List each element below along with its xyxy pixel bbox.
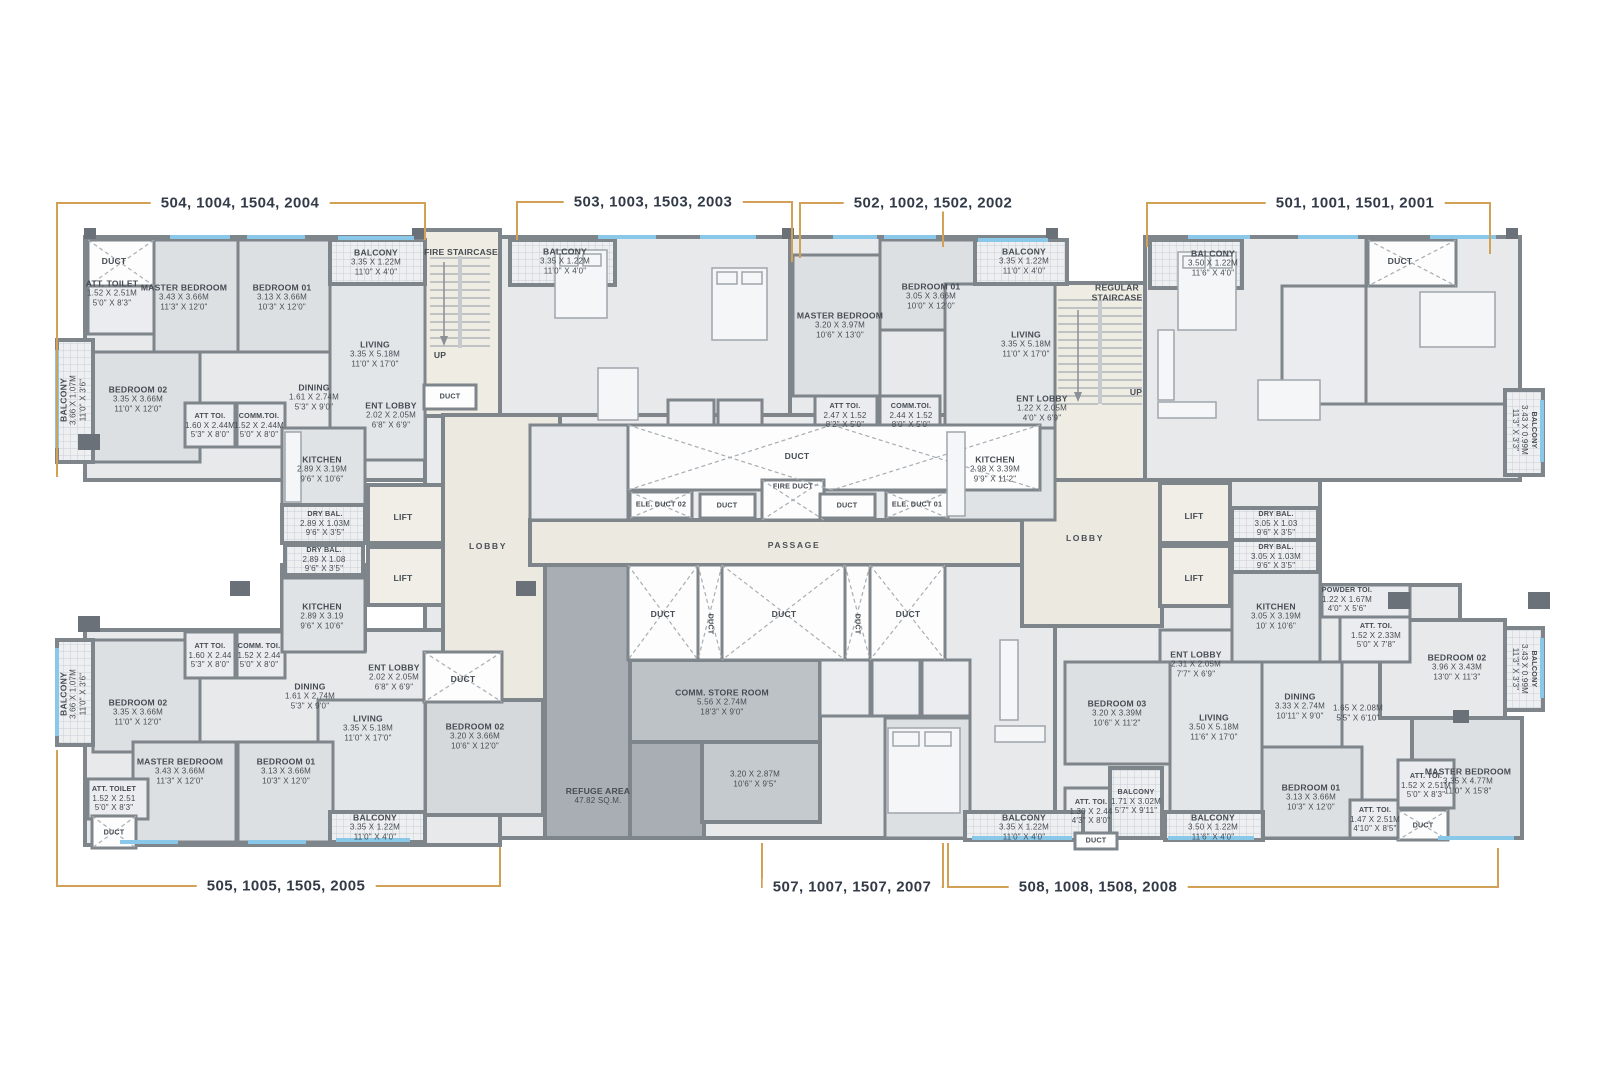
- unit-label-505: 505, 1005, 1505, 2005: [197, 878, 376, 895]
- room-label-508-balcony-bottom: BALCONY3.50 X 1.22M11'6" X 4'0": [1188, 812, 1238, 842]
- room-label-507-balcony-bottom: BALCONY3.35 X 1.22M11'0" X 4'0": [999, 812, 1049, 842]
- room-label-508-att-toi2: ATT. TOI.1.52 X 2.51M5'0" X 8'3": [1401, 772, 1451, 800]
- room-label-504-dining: DINING1.61 X 2.74M5'3" X 9'0": [289, 382, 339, 412]
- floor-plan: 504, 1004, 1504, 2004 503, 1003, 1503, 2…: [0, 0, 1600, 1067]
- room-label-508-living: LIVING3.50 X 5.18M11'6" X 17'0": [1189, 712, 1239, 742]
- room-label-505-balcony-bottom: BALCONY3.35 X 1.22M11'0" X 4'0": [350, 812, 400, 842]
- duct-label: DUCT: [451, 674, 476, 684]
- room-label-505-dining: DINING1.61 X 2.74M5'3" X 9'0": [285, 681, 335, 711]
- duct-label: DUCT: [706, 614, 715, 635]
- room-label-508-bed02: BEDROOM 023.96 X 3.43M13'0" X 11'3": [1428, 652, 1487, 682]
- duct-label: DUCT: [785, 451, 810, 461]
- room-label-508-hall-dim: 1.65 X 2.08M5'5" X 6'10": [1333, 703, 1383, 722]
- room-label-502-balcony: BALCONY3.35 X 1.22M11'0" X 4'0": [999, 246, 1049, 276]
- room-label-507-comm-store: COMM. STORE ROOM5.56 X 2.74M18'3" X 9'0": [675, 687, 769, 717]
- room-label-508-ent-lobby: ENT LOBBY2.31 X 2.05M7'7" X 6'9": [1170, 649, 1221, 679]
- room-label-504-master: MASTER BEDROOM3.43 X 3.66M11'3" X 12'0": [141, 282, 227, 312]
- duct-label: DUCT: [896, 609, 921, 619]
- duct-label: DUCT: [717, 502, 738, 511]
- room-label-505-dry-bal: DRY BAL.2.89 X 1.089'6" X 3'5": [302, 546, 345, 574]
- duct-label: DUCT: [102, 256, 127, 266]
- room-label-502-att-toi: ATT TOI.2.47 X 1.528'2" X 5'0": [823, 402, 866, 430]
- up-label: UP: [1130, 387, 1142, 397]
- room-label-504-bed02: BEDROOM 023.35 X 3.66M11'0" X 12'0": [109, 384, 168, 414]
- room-label-508-balcony-small: BALCONY1.71 X 3.02M5'7" X 9'11": [1111, 788, 1161, 816]
- room-label-508-bed01: BEDROOM 013.13 X 3.66M10'3" X 12'0": [1282, 782, 1341, 812]
- room-label-508-att-toi4: ATT. TOI.1.30 X 2.444'3" X 8'0": [1069, 798, 1112, 826]
- room-label-504-att-toi: ATT TOI.1.60 X 2.44M5'3" X 8'0": [185, 412, 235, 440]
- duct-label: DUCT: [1413, 822, 1434, 831]
- room-label-504-living: LIVING3.35 X 5.18M11'0" X 17'0": [350, 339, 400, 369]
- room-label-505-att-toi: ATT TOI.1.60 X 2.445'3" X 8'0": [188, 642, 231, 670]
- room-label-504-balcony-left: BALCONY3.66 X 1.07M11'0" X 3'6": [58, 375, 88, 425]
- room-label-508-att-toi3: ATT. TOI.1.47 X 2.51M4'10" X 8'5": [1350, 806, 1400, 834]
- room-label-504-comm-toi: COMM.TOI.1.52 X 2.44M5'0" X 8'0": [234, 412, 284, 440]
- room-label-505-balcony-left: BALCONY3.66 X 1.07M11'0" X 3'6": [58, 669, 88, 719]
- unit-label-503: 503, 1003, 1503, 2003: [564, 194, 743, 211]
- unit-label-504: 504, 1004, 1504, 2004: [151, 195, 330, 212]
- duct-label: DUCT: [440, 393, 461, 402]
- room-label-503-balcony: BALCONY3.35 X 1.22M11'0" X 4'0": [540, 246, 590, 276]
- room-label-508-bed03: BEDROOM 033.20 X 3.39M10'6" X 11'2": [1088, 698, 1147, 728]
- room-label-502-master: MASTER BEDROOM3.20 X 3.97M10'6" X 13'0": [797, 310, 883, 340]
- room-label-504-ent-lobby: ENT LOBBY2.02 X 2.05M6'8" X 6'9": [365, 400, 416, 430]
- lift-label: LIFT: [394, 512, 413, 522]
- room-label-508-balcony-right: BALCONY3.43 X 0.99M11'3" X 3'3": [1510, 644, 1538, 694]
- room-label-505-master: MASTER BEDROOM3.43 X 3.66M11'3" X 12'0": [137, 756, 223, 786]
- room-label-508-att-toi1: ATT. TOI.1.52 X 2.33M5'0" X 7'8": [1351, 622, 1401, 650]
- room-label-504-kitchen: KITCHEN2.89 X 3.19M9'6" X 10'6": [297, 454, 347, 484]
- room-label-502-kitchen: KITCHEN2.98 X 3.39M9'9" X 11'2": [970, 454, 1020, 484]
- unit-label-507: 507, 1007, 1507, 2007: [763, 879, 942, 896]
- room-label-505-living: LIVING3.35 X 5.18M11'0" X 17'0": [343, 713, 393, 743]
- room-label-504-balcony-top: BALCONY3.35 X 1.22M11'0" X 4'0": [351, 247, 401, 277]
- room-label-507-room-dim: 3.20 X 2.87M10'6" X 9'5": [730, 769, 780, 788]
- room-label-505-ent-lobby: ENT LOBBY2.02 X 2.05M6'8" X 6'9": [368, 662, 419, 692]
- duct-label: DUCT: [1388, 256, 1413, 266]
- room-label-508-dry-bal2: DRY BAL.3.05 X 1.03M9'6" X 3'5": [1251, 543, 1301, 571]
- room-label-502-ent-lobby: ENT LOBBY1.22 X 2.05M4'0" X 6'9": [1016, 393, 1067, 423]
- room-label-504-att-toilet: ATT. TOILET1.52 X 2.51M5'0" X 8'3": [86, 278, 139, 308]
- room-label-502-bed01: BEDROOM 013.05 X 3.66M10'0" X 12'0": [902, 281, 961, 311]
- room-label-501-balcony-top: BALCONY3.50 X 1.22M11'6" X 4'0": [1188, 248, 1238, 278]
- room-label-508-kitchen: KITCHEN3.05 X 3.19M10' X 10'6": [1251, 601, 1301, 631]
- room-label-501-balcony-right: BALCONY3.43 X 0.99M11'3" X 3'3": [1510, 405, 1538, 455]
- lift-label: LIFT: [1185, 573, 1204, 583]
- lobby-label: LOBBY: [1066, 533, 1104, 543]
- room-label-504-bed01: BEDROOM 013.13 X 3.66M10'3" X 12'0": [253, 282, 312, 312]
- room-label-505-bed02: BEDROOM 023.35 X 3.66M11'0" X 12'0": [109, 697, 168, 727]
- duct-label: DUCT: [1086, 837, 1107, 846]
- fire-staircase-label: FIRE STAIRCASE: [424, 247, 498, 257]
- lift-label: LIFT: [1185, 511, 1204, 521]
- room-label-505-comm-toi: COMM. TOI.1.52 X 2.445'0" X 8'0": [237, 642, 280, 670]
- room-label-505-bed01: BEDROOM 013.13 X 3.66M10'3" X 12'0": [257, 756, 316, 786]
- duct-label: DUCT: [772, 609, 797, 619]
- ele-duct-02-label: ELE. DUCT 02: [636, 501, 686, 510]
- up-label: UP: [434, 350, 446, 360]
- passage-label: PASSAGE: [768, 540, 821, 550]
- floor-plan-drawing: [0, 0, 1600, 1067]
- fire-duct-label: FIRE DUCT: [773, 483, 813, 492]
- room-label-505-kitchen: KITCHEN2.89 X 3.199'6" X 10'6": [300, 601, 343, 631]
- room-label-508-powder-toi: POWDER TOI.1.22 X 1.67M4'0" X 5'6": [1322, 586, 1372, 614]
- room-label-504-dry-bal: DRY BAL.2.89 X 1.03M9'6" X 3'5": [300, 510, 350, 538]
- room-label-507-refuge-area: REFUGE AREA47.82 SQ.M.: [566, 786, 630, 806]
- room-label-505-att-toilet: ATT. TOILET1.52 X 2.515'0" X 8'3": [92, 785, 136, 813]
- duct-label: DUCT: [853, 614, 862, 635]
- room-label-507-bed02: BEDROOM 023.20 X 3.66M10'6" X 12'0": [446, 721, 505, 751]
- regular-staircase-label: REGULAR STAIRCASE: [1080, 283, 1154, 304]
- unit-label-502: 502, 1002, 1502, 2002: [844, 195, 1023, 212]
- unit-label-501: 501, 1001, 1501, 2001: [1266, 195, 1445, 212]
- duct-label: DUCT: [104, 829, 125, 838]
- room-label-508-dining: DINING3.33 X 2.74M10'11" X 9'0": [1275, 691, 1325, 721]
- unit-label-508: 508, 1008, 1508, 2008: [1009, 879, 1188, 896]
- room-label-508-dry-bal1: DRY BAL.3.05 X 1.039'6" X 3'5": [1254, 510, 1297, 538]
- lobby-label: LOBBY: [469, 541, 507, 551]
- room-label-502-comm-toi: COMM.TOI.2.44 X 1.528'0" X 5'0": [889, 402, 932, 430]
- ele-duct-01-label: ELE. DUCT 01: [892, 501, 942, 510]
- duct-label: DUCT: [837, 502, 858, 511]
- lift-label: LIFT: [394, 573, 413, 583]
- duct-label: DUCT: [651, 609, 676, 619]
- room-label-502-living: LIVING3.35 X 5.18M11'0" X 17'0": [1001, 329, 1051, 359]
